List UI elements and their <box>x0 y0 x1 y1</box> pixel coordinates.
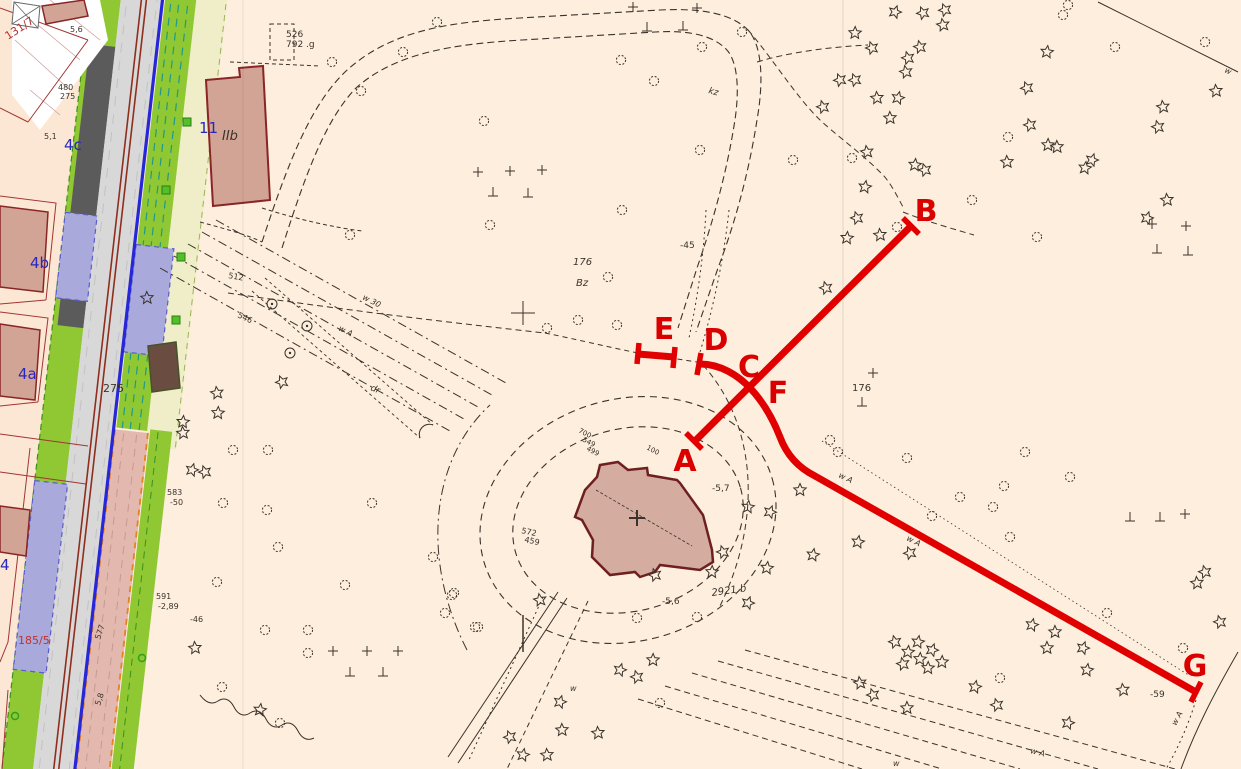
map-text: -45 <box>680 241 695 251</box>
building-4b <box>0 206 48 292</box>
map-text: 4b <box>30 254 49 272</box>
lamp-dot <box>306 325 308 327</box>
red-point-label-A: A <box>673 444 697 479</box>
map-text: Bz <box>576 278 589 289</box>
map-text: -5,7 <box>712 484 730 494</box>
fold-line-left <box>242 0 244 769</box>
map-text: 4c <box>64 136 82 154</box>
building-bottom-left <box>0 506 30 556</box>
red-point-label-C: C <box>738 350 760 385</box>
map-text: 275 <box>60 92 75 101</box>
red-point-label-D: D <box>704 323 729 358</box>
red-point-label-G: G <box>1183 649 1208 684</box>
map-text: 526 <box>286 30 303 40</box>
cadastral-map: 11IIb4c4b4a4131/7185/5275526792 .g176Bz-… <box>0 0 1241 769</box>
green-square-icon <box>177 253 185 261</box>
red-tick-E-left <box>637 343 639 364</box>
map-text: 5,1 <box>44 132 57 141</box>
map-text: 480 <box>58 83 73 92</box>
map-text: 176 <box>573 257 592 268</box>
lamp-dot <box>271 303 273 305</box>
map-text: IIb <box>222 129 238 144</box>
red-point-label-F: F <box>768 376 789 411</box>
map-text: 275 <box>103 382 124 395</box>
green-square-icon <box>172 316 180 324</box>
map-text: 5,6 <box>70 25 83 34</box>
map-text: 591 <box>156 592 171 601</box>
map-text: -2,89 <box>158 602 179 611</box>
map-text: -50 <box>170 498 183 507</box>
building-small-dark <box>148 342 180 392</box>
lamp-dot <box>289 352 291 354</box>
map-text: 583 <box>167 488 182 497</box>
map-text: w <box>893 759 900 768</box>
red-point-label-E: E <box>654 312 675 347</box>
green-square-icon <box>162 186 170 194</box>
red-segment-E <box>638 354 674 357</box>
map-text: 176 <box>852 383 871 394</box>
red-point-label-B: B <box>915 194 938 229</box>
map-text: 4 <box>0 556 10 574</box>
map-text: -59 <box>1150 690 1165 700</box>
map-text: 4a <box>18 365 37 383</box>
map-text: -5,6 <box>662 597 680 607</box>
map-text: w <box>570 684 577 693</box>
map-text: 185/5 <box>18 634 50 647</box>
building-4a <box>0 324 40 400</box>
map-text: 11 <box>199 119 218 137</box>
map-text: -46 <box>190 615 203 624</box>
green-square-icon <box>183 118 191 126</box>
red-tick-E-right <box>673 347 675 368</box>
map-canvas: 11IIb4c4b4a4131/7185/5275526792 .g176Bz-… <box>0 0 1241 769</box>
fold-line-right <box>842 0 844 769</box>
map-text: 792 .g <box>286 40 315 50</box>
